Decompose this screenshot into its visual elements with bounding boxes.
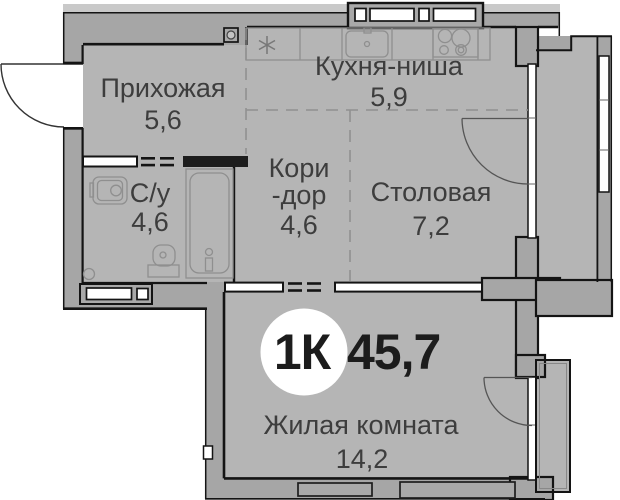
svg-text:4,6: 4,6 [280,210,318,240]
corridor-opening [225,282,482,292]
svg-text:Столовая: Столовая [371,177,492,207]
svg-text:5,6: 5,6 [144,105,182,135]
vent-shaft-icon [348,3,483,28]
window-icon [298,482,515,498]
badge-total-area: 45,7 [347,324,440,380]
svg-text:Прихожая: Прихожая [100,73,225,103]
vent-shaft-icon [80,284,152,304]
svg-text:С/у: С/у [130,178,171,208]
floor-plan: Прихожая 5,6 Кухня-ниша 5,9 С/у 4,6 Кори… [0,0,620,500]
peephole-icon [224,28,238,42]
svg-text:14,2: 14,2 [336,444,389,474]
svg-text:7,2: 7,2 [412,211,450,241]
svg-text:5,9: 5,9 [370,82,408,112]
svg-text:Жилая комната: Жилая комната [263,410,459,440]
svg-text:-дор: -дор [272,180,327,210]
svg-text:4,6: 4,6 [131,207,169,237]
badge-type-label: 1К [274,324,332,380]
svg-text:Кори: Кори [269,153,330,183]
svg-text:Кухня-ниша: Кухня-ниша [315,51,464,81]
window-icon [204,446,213,459]
room-label-bathroom: С/у 4,6 [130,178,171,237]
window-icon [599,56,609,192]
